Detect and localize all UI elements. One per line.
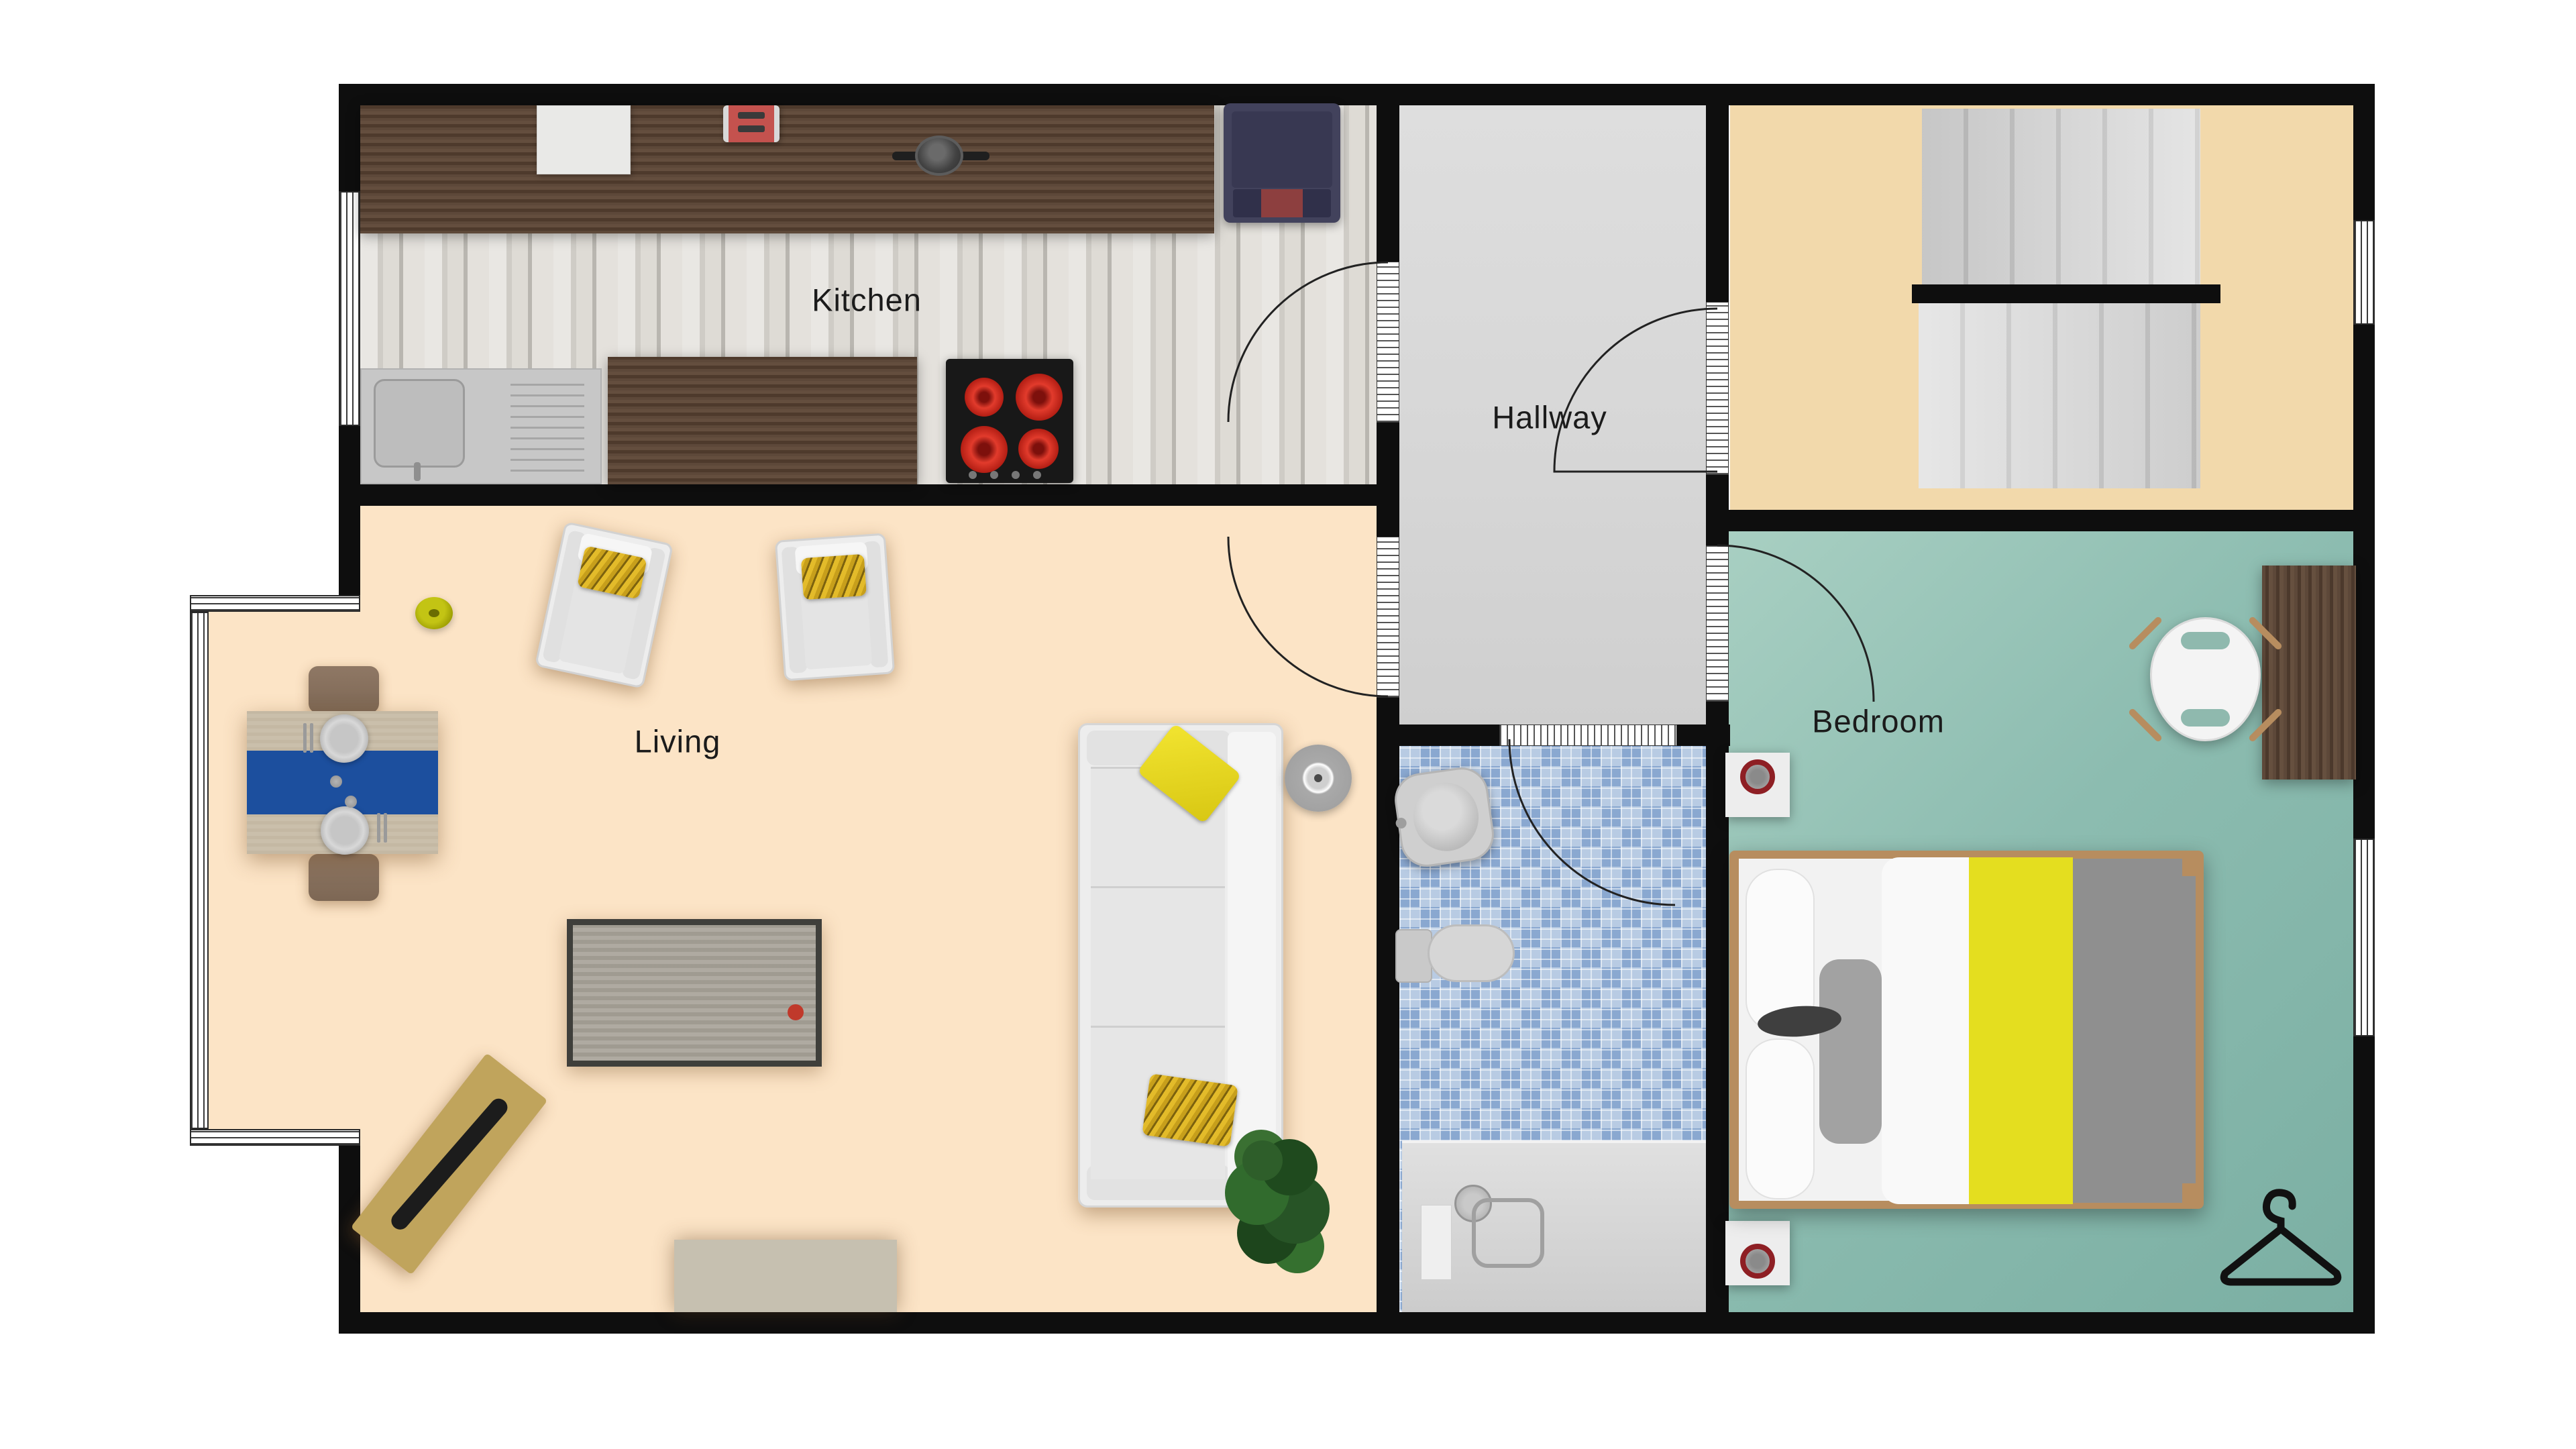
kitchen-counter-top	[360, 105, 1214, 233]
yellow-disc	[415, 597, 453, 629]
bed-pillow-gray	[1819, 959, 1882, 1144]
plant	[1242, 1140, 1283, 1181]
wall-hallway-stairs	[1706, 105, 1729, 1312]
bathroom-sink	[1391, 764, 1497, 870]
cutting-board	[537, 105, 631, 174]
refrigerator	[1224, 103, 1340, 223]
wall-stairs-bedroom	[1706, 510, 2375, 531]
duvet-gray	[2073, 859, 2196, 1203]
kitchen-island-counter	[608, 357, 917, 484]
toilet-tank	[1395, 929, 1432, 983]
door-rug	[674, 1240, 897, 1312]
wall-kitchen-living	[339, 484, 1399, 506]
round-speaker	[1285, 745, 1352, 812]
stove	[946, 359, 1073, 483]
dining-table	[247, 711, 438, 854]
armchair-right	[775, 533, 895, 682]
wall-left-lower	[339, 1132, 360, 1334]
bay-window-bottom	[190, 1129, 360, 1146]
shower-tray	[1402, 1140, 1706, 1312]
kitchen-door	[1377, 262, 1399, 423]
floor-plan-canvas: Kitchen Hallway Living Bedroom	[0, 0, 2576, 1449]
toaster	[723, 105, 780, 142]
shower-drain-frame	[1472, 1198, 1544, 1268]
clock-top	[1740, 759, 1775, 794]
sofa	[1078, 723, 1283, 1207]
plate-top	[320, 714, 368, 763]
dining-chair-bottom	[309, 854, 379, 901]
wall-bottom	[339, 1312, 2375, 1334]
clock-bottom	[1740, 1244, 1775, 1279]
dining-chair-top	[309, 666, 379, 713]
stairs-door	[1706, 302, 1729, 475]
living-label: Living	[635, 723, 721, 760]
stairs-lower-flight	[1919, 303, 2200, 488]
sofa-pillow-zigzag	[1142, 1073, 1238, 1146]
toilet-bowl	[1428, 924, 1515, 982]
bed-pillow-2	[1746, 1038, 1815, 1199]
bay-window-left	[190, 612, 209, 1129]
sink-basin	[374, 379, 465, 468]
media-table	[567, 919, 822, 1067]
frying-pan	[915, 136, 963, 176]
bedroom-label: Bedroom	[1812, 703, 1945, 740]
stairs-window	[2353, 220, 2375, 325]
bedroom-window	[2353, 839, 2375, 1036]
desk	[2262, 566, 2356, 780]
bay-window-top	[190, 595, 360, 612]
shower-control	[1421, 1205, 1452, 1280]
kitchen-window	[339, 191, 360, 426]
kitchen-label: Kitchen	[812, 282, 922, 319]
stairs-divider	[1912, 284, 2220, 303]
bed	[1729, 851, 2204, 1209]
hallway-label: Hallway	[1492, 399, 1607, 436]
stairs-upper-flight	[1922, 109, 2200, 284]
plate-bottom	[321, 806, 369, 855]
sink-faucet	[414, 462, 421, 481]
duvet-yellow-stripe	[1969, 857, 2073, 1204]
kitchen-sink-unit	[360, 368, 602, 484]
red-button	[788, 1004, 804, 1020]
duvet-white-fold	[1882, 857, 1969, 1204]
desk-chair	[2150, 617, 2261, 741]
bathroom-door	[1499, 724, 1677, 746]
bedroom-door	[1706, 545, 1729, 702]
wall-top	[339, 84, 2375, 105]
living-door	[1377, 537, 1399, 698]
sink-drainboard	[511, 383, 584, 472]
